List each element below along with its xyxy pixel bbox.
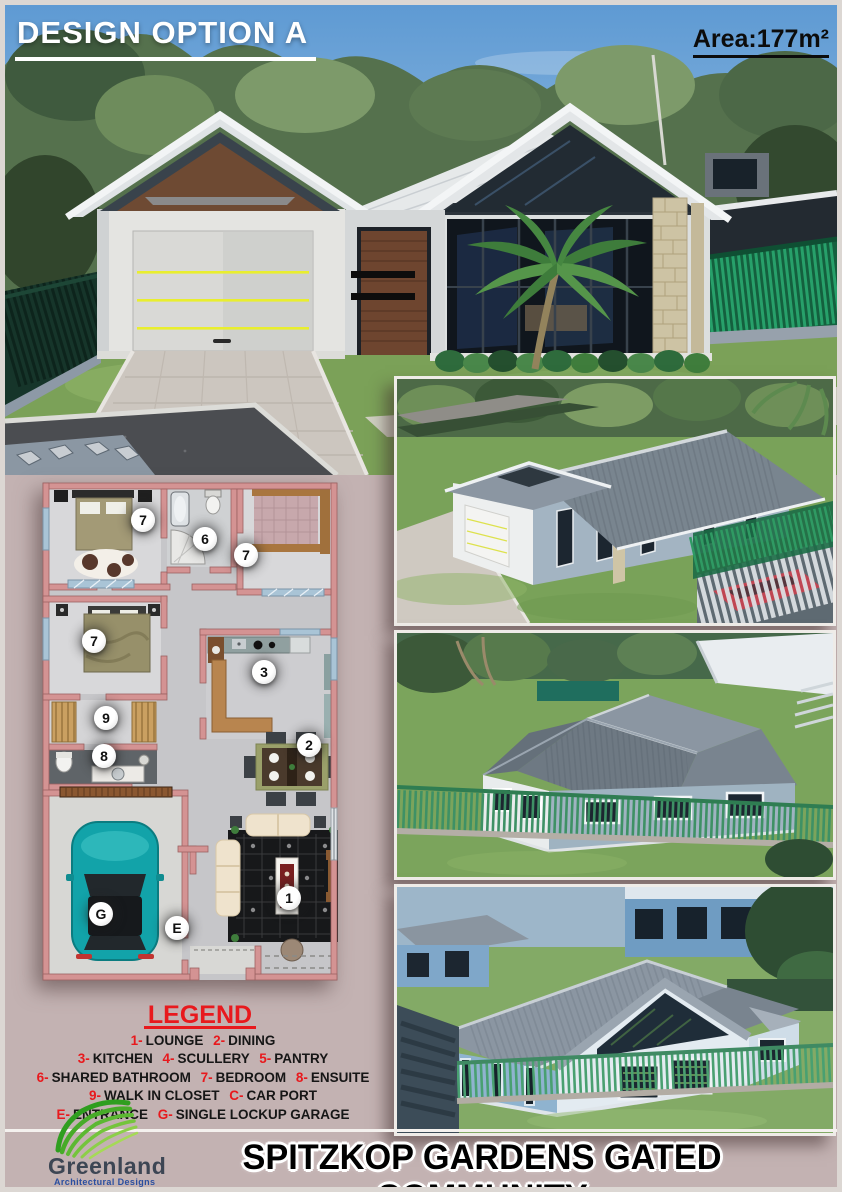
render-aerial-side (394, 884, 836, 1136)
render-c-scene (397, 887, 833, 1133)
floor-plan: 7 6 7 7 3 9 8 2 1 G E (40, 478, 342, 988)
plan-marker-entrance: E (165, 916, 189, 940)
legend-label: LOUNGE (146, 1033, 204, 1048)
logo-subtitle: Architectural Designs (54, 1177, 155, 1187)
legend-title: LEGEND (144, 1006, 256, 1029)
plan-marker-walk-in-closet: 9 (94, 706, 118, 730)
entry-section (345, 210, 445, 355)
logo-name: Greenland (48, 1153, 166, 1179)
plan-marker-bedroom-2: 7 (234, 543, 258, 567)
legend-label: BEDROOM (216, 1070, 287, 1085)
legend-key: 1- (131, 1033, 143, 1048)
legend-label: PANTRY (274, 1051, 328, 1066)
legend-label: DINING (228, 1033, 275, 1048)
legend-key: 8- (296, 1070, 308, 1085)
legend-label: SINGLE LOCKUP GARAGE (176, 1107, 350, 1122)
leaf-icon (58, 1102, 137, 1158)
plan-marker-dining: 2 (297, 733, 321, 757)
legend-line-2: 3-KITCHEN 4-SCULLERY 5-PANTRY (30, 1050, 370, 1069)
legend-label: ENSUITE (311, 1070, 370, 1085)
site-fence-panel (537, 681, 619, 701)
render-aerial-front (394, 376, 836, 626)
logo-graphic: Greenland Architectural Designs (22, 1098, 172, 1188)
render-a-scene (397, 379, 833, 623)
legend-key: 4- (162, 1051, 174, 1066)
greenland-logo: Greenland Architectural Designs (22, 1098, 172, 1188)
legend-line-3: 6-SHARED BATHROOM 7-BEDROOM 8-ENSUITE (30, 1069, 370, 1088)
plan-marker-kitchen: 3 (252, 660, 276, 684)
tree-band (397, 379, 833, 437)
plan-marker-shared-bathroom: 6 (193, 527, 217, 551)
legend-key: 5- (259, 1051, 271, 1066)
floor-plan-drawing (40, 478, 342, 988)
plan-marker-lounge: 1 (277, 886, 301, 910)
legend-key: 2- (213, 1033, 225, 1048)
teal-car (66, 822, 164, 960)
legend-label: SHARED BATHROOM (52, 1070, 191, 1085)
legend-label: SCULLERY (178, 1051, 250, 1066)
plan-marker-bedroom-3: 7 (82, 629, 106, 653)
plan-marker-ensuite: 8 (92, 744, 116, 768)
legend-label: KITCHEN (93, 1051, 153, 1066)
area-label: Area:177m² (693, 25, 829, 58)
legend-label: CAR PORT (247, 1088, 318, 1103)
legend-key: C- (229, 1088, 243, 1103)
legend-key: 3- (78, 1051, 90, 1066)
legend-key: 6- (37, 1070, 49, 1085)
poster: DESIGN OPTION A Area:177m² (0, 0, 842, 1192)
stone-pillar (653, 198, 704, 365)
plan-marker-garage: G (89, 902, 113, 926)
legend-line-1: 1-LOUNGE 2-DINING (30, 1032, 370, 1051)
render-b-scene (397, 633, 833, 877)
garage-door (133, 231, 313, 351)
render-aerial-rear (394, 630, 836, 880)
legend-key: 7- (201, 1070, 213, 1085)
plan-marker-bedroom-1: 7 (131, 508, 155, 532)
dark-fence (397, 1005, 459, 1133)
design-option-title: DESIGN OPTION A (15, 15, 316, 61)
community-title: SPITZKOP GARDENS GATED COMMUNITY (162, 1138, 803, 1192)
